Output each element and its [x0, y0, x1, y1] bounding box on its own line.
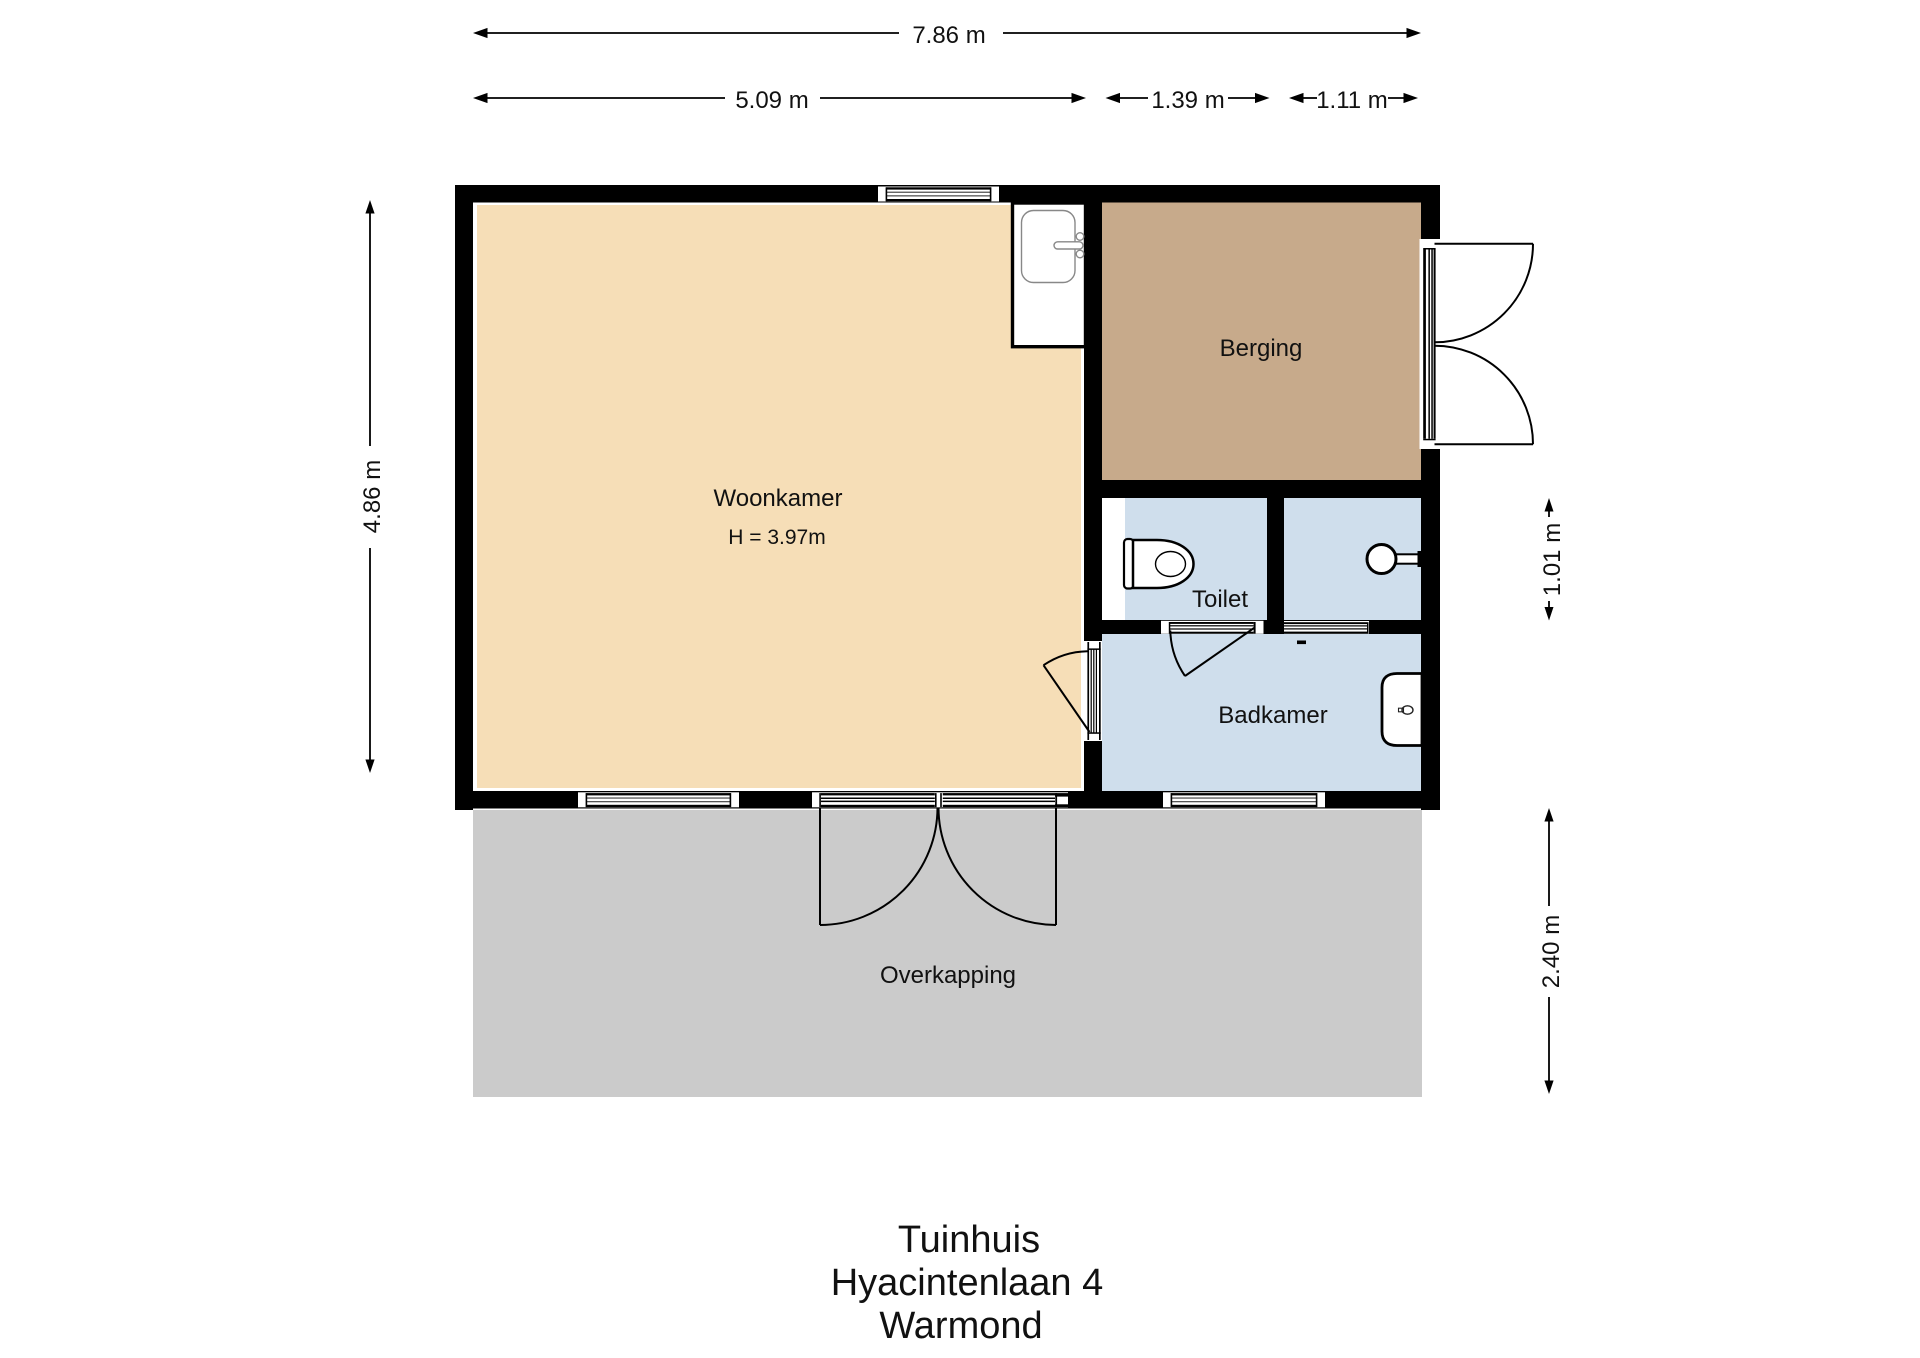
svg-text:4.86 m: 4.86 m	[359, 460, 386, 533]
svg-text:Tuinhuis: Tuinhuis	[898, 1219, 1040, 1261]
svg-text:Toilet: Toilet	[1192, 586, 1248, 613]
svg-text:Badkamer: Badkamer	[1218, 702, 1327, 729]
svg-text:5.09 m: 5.09 m	[735, 87, 808, 114]
svg-text:Overkapping: Overkapping	[880, 962, 1016, 989]
svg-text:Berging: Berging	[1220, 335, 1303, 362]
svg-text:Warmond: Warmond	[879, 1305, 1042, 1347]
svg-text:7.86 m: 7.86 m	[912, 22, 985, 49]
svg-text:2.40 m: 2.40 m	[1538, 915, 1565, 988]
svg-text:Woonkamer: Woonkamer	[714, 485, 843, 512]
svg-text:H = 3.97m: H = 3.97m	[728, 526, 825, 549]
svg-text:1.01 m: 1.01 m	[1539, 523, 1566, 596]
svg-text:1.39 m: 1.39 m	[1151, 87, 1224, 114]
svg-text:Hyacintenlaan 4: Hyacintenlaan 4	[831, 1262, 1104, 1304]
svg-text:1.11 m: 1.11 m	[1316, 87, 1388, 114]
